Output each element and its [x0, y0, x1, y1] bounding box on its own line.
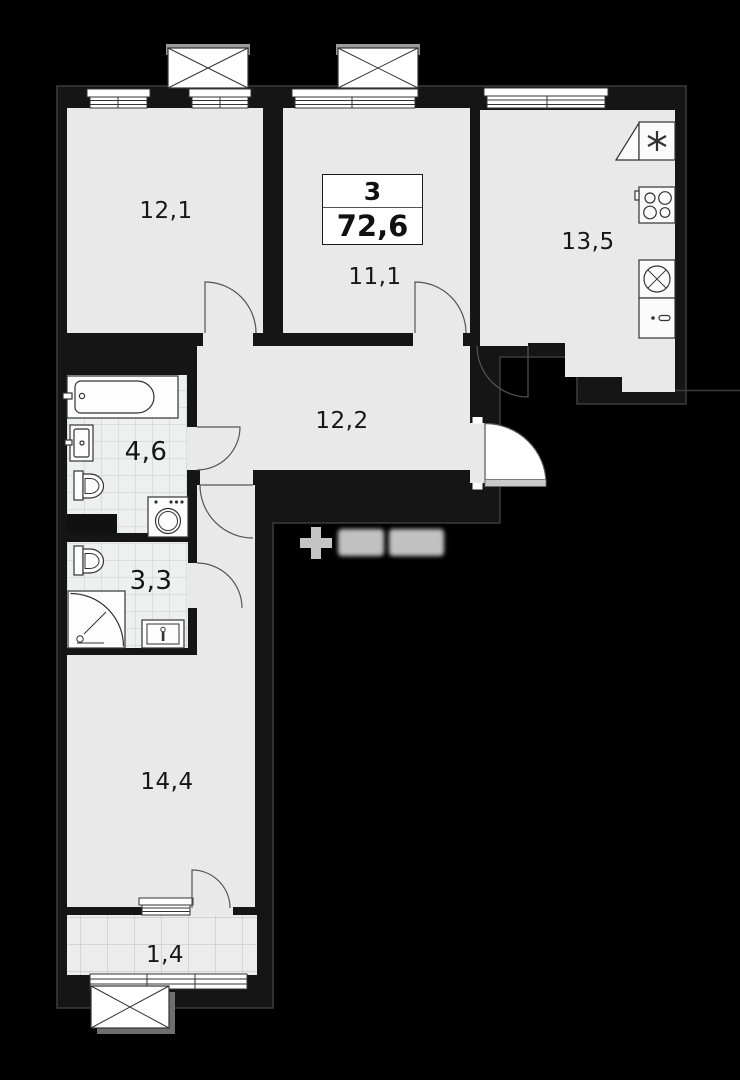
wc-area-label: 3,3	[130, 566, 173, 596]
room-11-1-area-label: 11,1	[348, 264, 401, 290]
stove-icon	[635, 187, 675, 223]
unit-rooms-count: 3	[323, 175, 422, 208]
watermark-text-blob	[338, 529, 384, 556]
bathtub-icon	[63, 376, 178, 418]
kitchen-sink-icon	[639, 260, 675, 298]
bathroom-area-label: 4,6	[125, 437, 168, 467]
floor-plan-page: 12,1 11,1 13,5 12,2 4,6 3,3 14,4 1,4 3 7…	[0, 0, 740, 1080]
window-room-12-1-right	[189, 89, 251, 108]
shower-icon	[68, 591, 125, 648]
bathroom-wall-stub	[67, 514, 117, 533]
unit-info-box: 3 72,6	[322, 174, 423, 245]
watermark-plus-icon	[300, 527, 332, 559]
window-room-11-1	[292, 89, 418, 108]
kitchen-floor-step1	[565, 343, 675, 377]
ac-basket-top-left	[166, 44, 250, 88]
balcony-basket	[91, 986, 175, 1034]
window-room-12-1-left	[87, 89, 150, 108]
kitchen-cabinet-icon	[639, 298, 675, 338]
hallway-area-label: 12,2	[315, 408, 368, 434]
window-kitchen	[484, 88, 608, 108]
watermark-text-blob	[389, 529, 444, 556]
washing-machine-icon	[148, 497, 188, 537]
ac-basket-top-right	[336, 44, 420, 88]
unit-total-area: 72,6	[323, 208, 422, 244]
room-14-4-area-label: 14,4	[140, 769, 193, 795]
kitchen-floor-step2	[622, 377, 675, 392]
balcony-door-window	[139, 898, 193, 915]
wc-sink-icon	[142, 620, 184, 648]
balcony-area-label: 1,4	[146, 942, 184, 968]
room-12-1-area-label: 12,1	[139, 198, 192, 224]
kitchen-area-label: 13,5	[561, 229, 614, 255]
